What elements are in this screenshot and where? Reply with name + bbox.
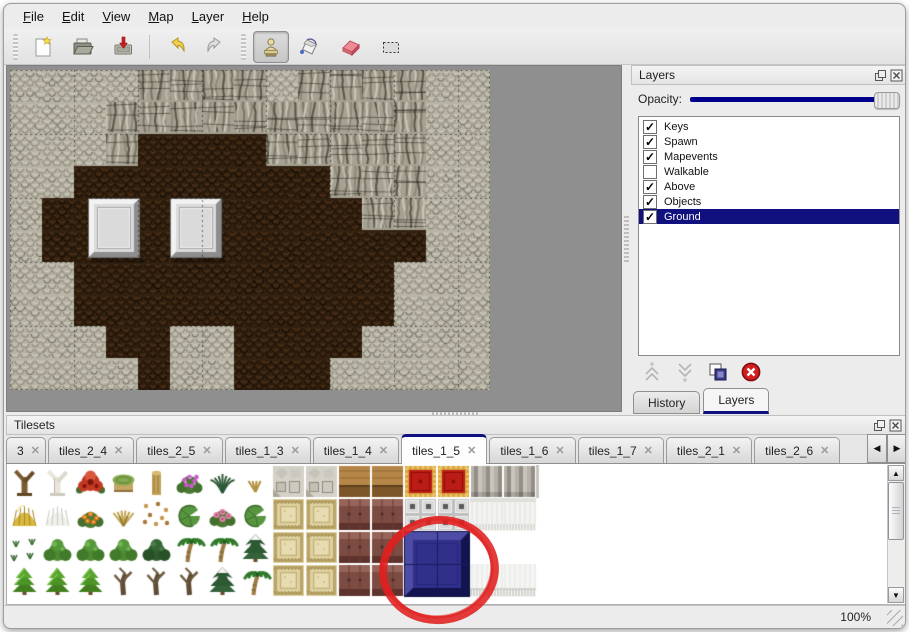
redo-button[interactable]: [198, 31, 234, 63]
tileset-tab-label: tiles_1_4: [324, 444, 372, 458]
tileset-tab-tiles_2_5[interactable]: tiles_2_5✕: [136, 437, 222, 463]
close-panel-icon[interactable]: [889, 419, 902, 432]
toolbar-drag-handle[interactable]: [13, 34, 18, 60]
scroll-up-button[interactable]: ▲: [888, 465, 904, 481]
tileset-tab-label: tiles_2_1: [677, 444, 725, 458]
layer-name: Spawn: [664, 136, 698, 148]
tab-layers[interactable]: Layers: [703, 388, 769, 414]
layers-panel-header: Layers: [631, 65, 906, 85]
layer-list: ✓Keys✓Spawn✓MapeventsWalkable✓Above✓Obje…: [638, 116, 900, 356]
thumb-grip: [892, 507, 900, 516]
float-panel-icon[interactable]: [873, 419, 886, 432]
tab-close-icon[interactable]: ✕: [31, 444, 40, 457]
layers-panel: Layers Opacity: ✓Keys✓Spawn✓MapeventsWal…: [631, 65, 906, 414]
layer-row-ground[interactable]: ✓Ground: [639, 209, 899, 224]
app-window: FileEditViewMapLayerHelp: [3, 3, 906, 629]
tileset-tab-3[interactable]: 3✕: [6, 437, 46, 463]
layer-row-above[interactable]: ✓Above: [639, 179, 899, 194]
tileset-tab-label: tiles_1_5: [412, 444, 460, 458]
tileset-tab-tiles_1_4[interactable]: tiles_1_4✕: [313, 437, 399, 463]
layer-visibility-checkbox[interactable]: ✓: [643, 210, 657, 224]
toolbar: [4, 29, 905, 65]
opacity-row: Opacity:: [631, 85, 906, 111]
tileset-tab-label: tiles_1_7: [589, 444, 637, 458]
tab-close-icon[interactable]: ✕: [820, 444, 829, 457]
selection-rect-icon: [379, 35, 403, 59]
layer-action-buttons: [631, 356, 906, 388]
redo-arrow-icon: [204, 35, 228, 59]
tileset-tab-tiles_1_6[interactable]: tiles_1_6✕: [489, 437, 575, 463]
tab-close-icon[interactable]: ✕: [732, 444, 741, 457]
open-folder-icon: [71, 35, 95, 59]
tileset-tab-label: 3: [17, 444, 24, 458]
layer-row-keys[interactable]: ✓Keys: [639, 119, 899, 134]
scrollbar-thumb[interactable]: [888, 482, 904, 540]
vertical-splitter[interactable]: [622, 65, 631, 412]
splitter-grip: [624, 216, 629, 262]
tileset-tab-bar: 3✕tiles_2_4✕tiles_2_5✕tiles_1_3✕tiles_1_…: [6, 435, 906, 464]
merge-layer-button[interactable]: [707, 361, 729, 383]
layer-row-walkable[interactable]: Walkable: [639, 164, 899, 179]
stamp-tool-button[interactable]: [253, 31, 289, 63]
fill-tool-button[interactable]: [293, 31, 329, 63]
tab-close-icon[interactable]: ✕: [644, 444, 653, 457]
zoom-level-label: 100%: [840, 610, 871, 624]
menu-item-help[interactable]: Help: [233, 6, 278, 27]
layers-panel-title: Layers: [639, 68, 871, 82]
delete-layer-button[interactable]: [740, 361, 762, 383]
tileset-tab-label: tiles_2_4: [59, 444, 107, 458]
opacity-slider-thumb[interactable]: [874, 92, 900, 109]
tileset-content[interactable]: ▲ ▼: [6, 464, 906, 605]
panel-bottom-tabs: HistoryLayers: [631, 388, 906, 414]
tab-close-icon[interactable]: ✕: [467, 444, 476, 457]
toolbar-separator: [149, 35, 150, 59]
layer-name: Mapevents: [664, 151, 718, 163]
tileset-tab-label: tiles_1_3: [236, 444, 284, 458]
tab-close-icon[interactable]: ✕: [379, 444, 388, 457]
tab-close-icon[interactable]: ✕: [114, 444, 123, 457]
scroll-tabs-right-button[interactable]: ▶: [887, 434, 906, 463]
undo-arrow-icon: [164, 35, 188, 59]
open-button[interactable]: [65, 31, 101, 63]
tileset-tab-tiles_1_3[interactable]: tiles_1_3✕: [225, 437, 311, 463]
stamp-icon: [259, 35, 283, 59]
layer-name: Walkable: [664, 166, 709, 178]
tileset-tab-tiles_2_4[interactable]: tiles_2_4✕: [48, 437, 134, 463]
lower-layer-button[interactable]: [674, 361, 696, 383]
tilesets-panel-title: Tilesets: [14, 418, 870, 432]
layer-name: Objects: [664, 196, 701, 208]
tilesets-panel-header: Tilesets: [6, 415, 906, 435]
scroll-tabs-left-button[interactable]: ◀: [867, 434, 887, 463]
window-resize-grip[interactable]: [887, 610, 903, 626]
layer-row-objects[interactable]: ✓Objects: [639, 194, 899, 209]
layer-name: Ground: [664, 211, 701, 223]
tileset-tab-tiles_1_7[interactable]: tiles_1_7✕: [578, 437, 664, 463]
tileset-tab-tiles_2_6[interactable]: tiles_2_6✕: [754, 437, 840, 463]
menu-item-edit[interactable]: Edit: [53, 6, 93, 27]
layer-visibility-checkbox[interactable]: ✓: [643, 195, 657, 209]
layer-visibility-checkbox[interactable]: ✓: [643, 120, 657, 134]
status-bar: 100%: [4, 605, 905, 628]
opacity-label: Opacity:: [638, 92, 682, 106]
tab-close-icon[interactable]: ✕: [555, 444, 564, 457]
tab-close-icon[interactable]: ✕: [202, 444, 211, 457]
undo-button[interactable]: [158, 31, 194, 63]
tilesets-panel: Tilesets 3✕tiles_2_4✕tiles_2_5✕tiles_1_3…: [6, 415, 906, 605]
layer-visibility-checkbox[interactable]: ✓: [643, 135, 657, 149]
opacity-slider[interactable]: [690, 91, 900, 107]
menu-bar: FileEditViewMapLayerHelp: [4, 4, 905, 29]
tileset-tab-label: tiles_1_6: [500, 444, 548, 458]
layer-name: Above: [664, 181, 695, 193]
select-tool-button[interactable]: [373, 31, 409, 63]
layer-visibility-checkbox[interactable]: [643, 165, 657, 179]
menu-item-view[interactable]: View: [93, 6, 139, 27]
layer-name: Keys: [664, 121, 688, 133]
tileset-tab-label: tiles_2_6: [765, 444, 813, 458]
raise-layer-button[interactable]: [641, 361, 663, 383]
eraser-icon: [339, 35, 363, 59]
save-icon: [111, 35, 135, 59]
tileset-tab-tiles_2_1[interactable]: tiles_2_1✕: [666, 437, 752, 463]
save-button[interactable]: [105, 31, 141, 63]
map-canvas[interactable]: [10, 70, 490, 390]
close-panel-icon[interactable]: [890, 69, 903, 82]
scroll-down-button[interactable]: ▼: [888, 587, 904, 603]
opacity-slider-track: [690, 97, 896, 102]
screenshot-stage: FileEditViewMapLayerHelp: [0, 0, 909, 632]
paint-bucket-icon: [299, 35, 323, 59]
toolbar-drag-handle[interactable]: [241, 34, 246, 60]
new-button[interactable]: [25, 31, 61, 63]
menu-item-file[interactable]: File: [14, 6, 53, 27]
map-canvas-area[interactable]: [6, 65, 622, 412]
new-file-icon: [31, 35, 55, 59]
tab-history[interactable]: History: [633, 391, 700, 414]
layer-row-mapevents[interactable]: ✓Mapevents: [639, 149, 899, 164]
layer-visibility-checkbox[interactable]: ✓: [643, 180, 657, 194]
layer-row-spawn[interactable]: ✓Spawn: [639, 134, 899, 149]
tileset-tab-tiles_1_5[interactable]: tiles_1_5✕: [401, 434, 487, 464]
tileset-canvas[interactable]: [8, 465, 544, 599]
menu-item-layer[interactable]: Layer: [183, 6, 234, 27]
float-panel-icon[interactable]: [874, 69, 887, 82]
tileset-tab-label: tiles_2_5: [147, 444, 195, 458]
eraser-tool-button[interactable]: [333, 31, 369, 63]
tab-close-icon[interactable]: ✕: [291, 444, 300, 457]
tileset-scrollbar[interactable]: ▲ ▼: [887, 465, 905, 603]
layer-visibility-checkbox[interactable]: ✓: [643, 150, 657, 164]
menu-item-map[interactable]: Map: [139, 6, 182, 27]
